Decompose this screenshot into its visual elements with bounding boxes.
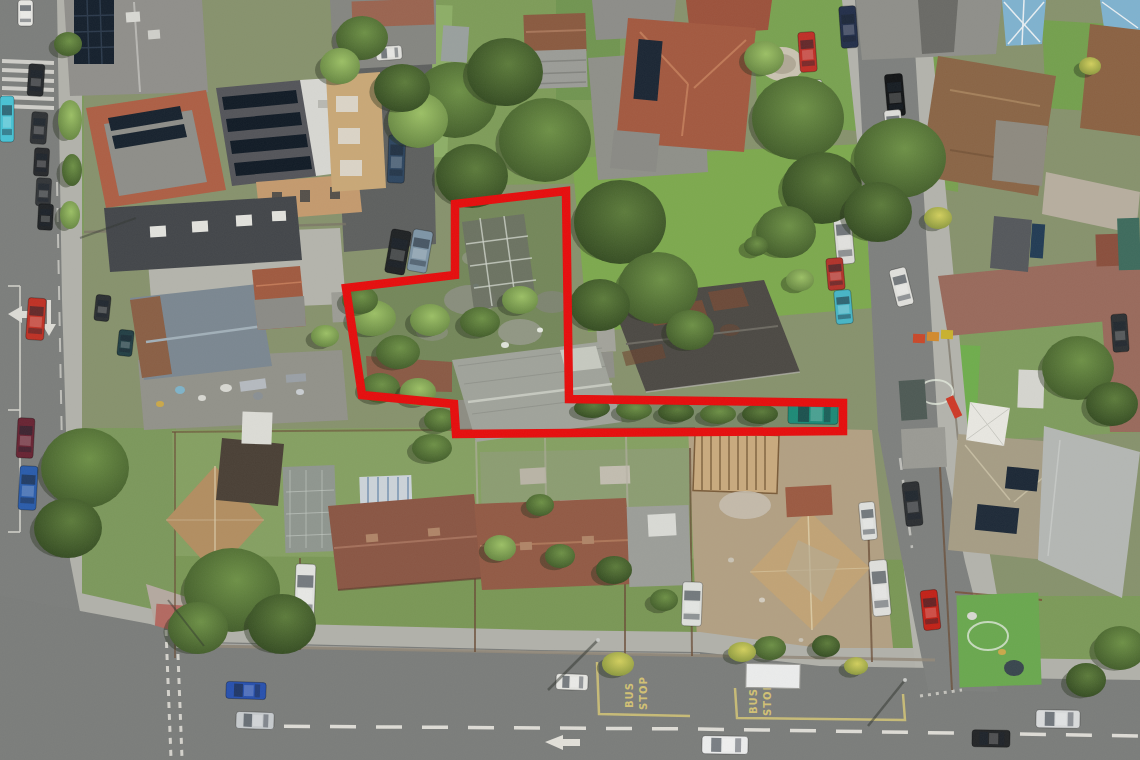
aerial-photo-canvas: BUSSTOPBUSSTOP [0, 0, 1140, 760]
aerial-photo: BUSSTOPBUSSTOP [0, 0, 1140, 760]
photo-grain-overlay [0, 0, 1140, 760]
